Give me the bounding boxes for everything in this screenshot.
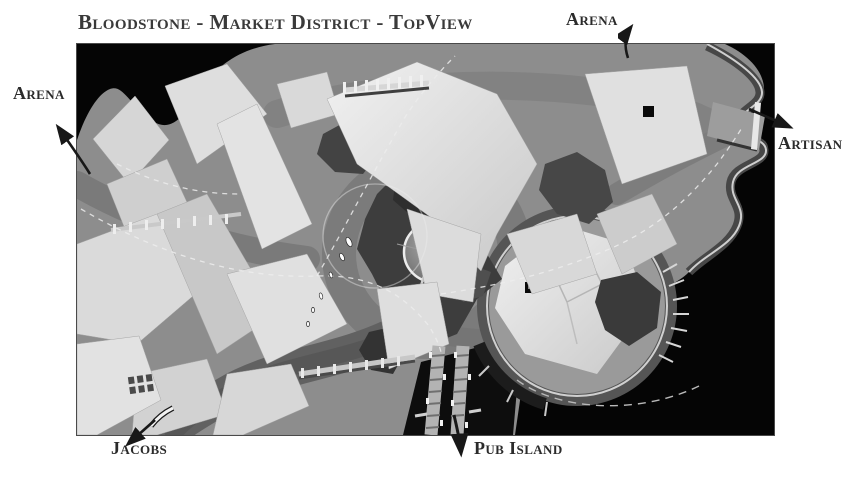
jacobs-arrow-icon — [116, 412, 162, 452]
pub-island-arrow-icon — [446, 412, 472, 460]
arena-west-arrow-icon — [48, 116, 94, 178]
page-title: Bloodstone - Market District - TopView — [78, 10, 473, 35]
label-arena-west: Arena — [13, 83, 65, 104]
map-frame — [76, 43, 775, 436]
label-artisan: Artisan — [778, 133, 842, 154]
label-pub-island: Pub Island — [474, 438, 563, 459]
artisan-arrow-icon — [746, 102, 804, 136]
label-arena-north: Arena — [566, 9, 618, 30]
map-render — [77, 44, 774, 435]
arena-north-arrow-icon — [618, 22, 644, 62]
